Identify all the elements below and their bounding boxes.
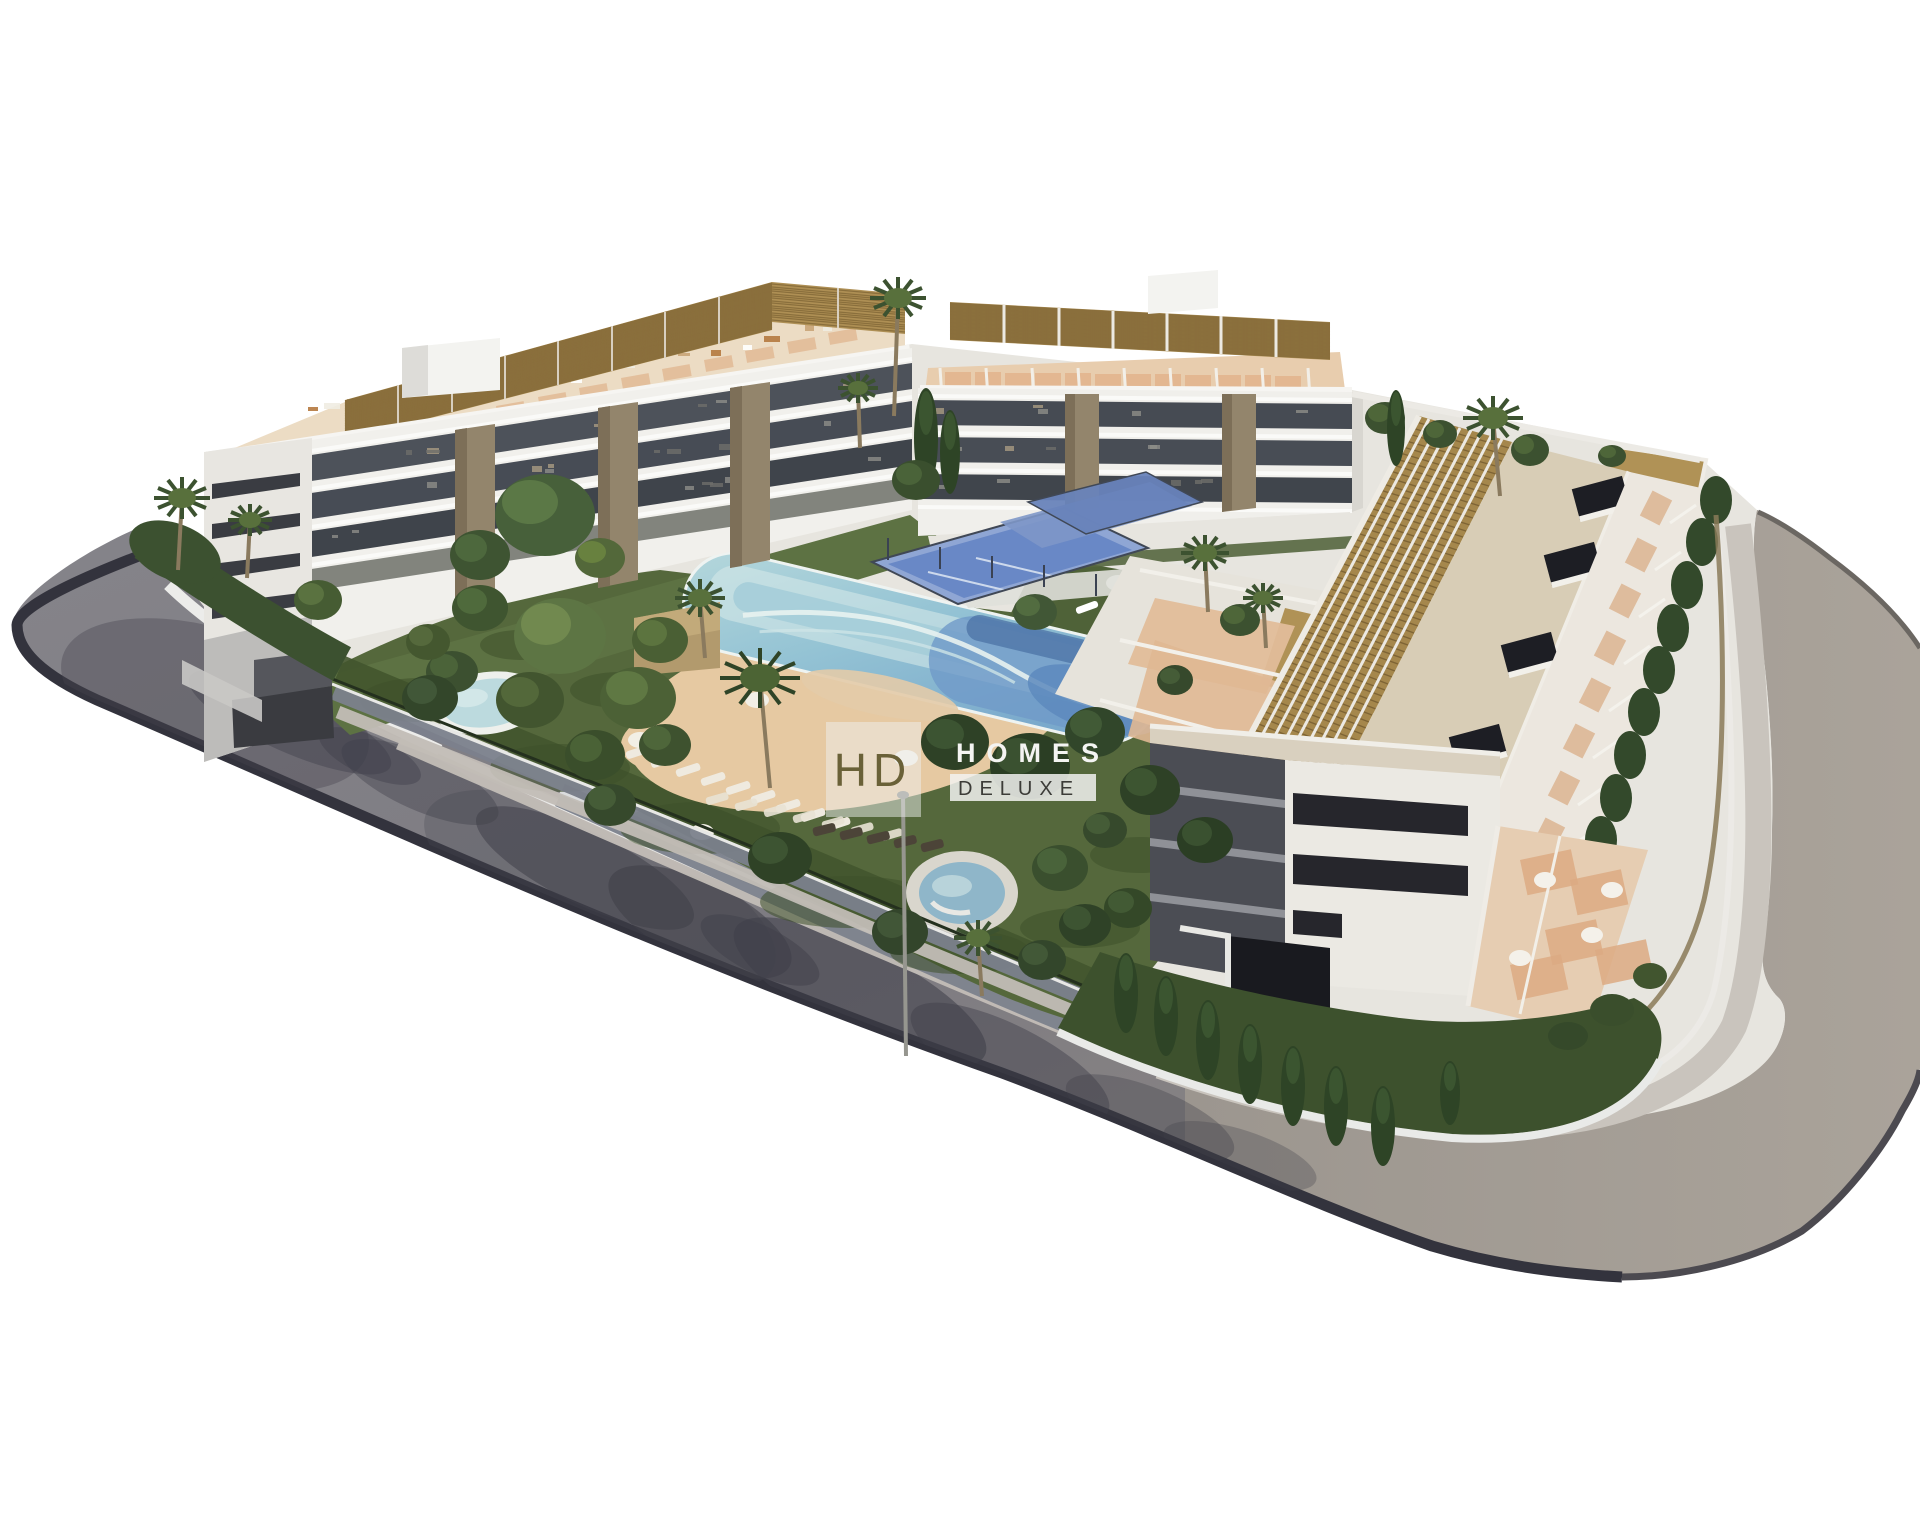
svg-text:HOMES: HOMES — [956, 738, 1110, 768]
svg-text:DELUXE: DELUXE — [958, 778, 1080, 800]
svg-text:HD: HD — [834, 744, 912, 796]
